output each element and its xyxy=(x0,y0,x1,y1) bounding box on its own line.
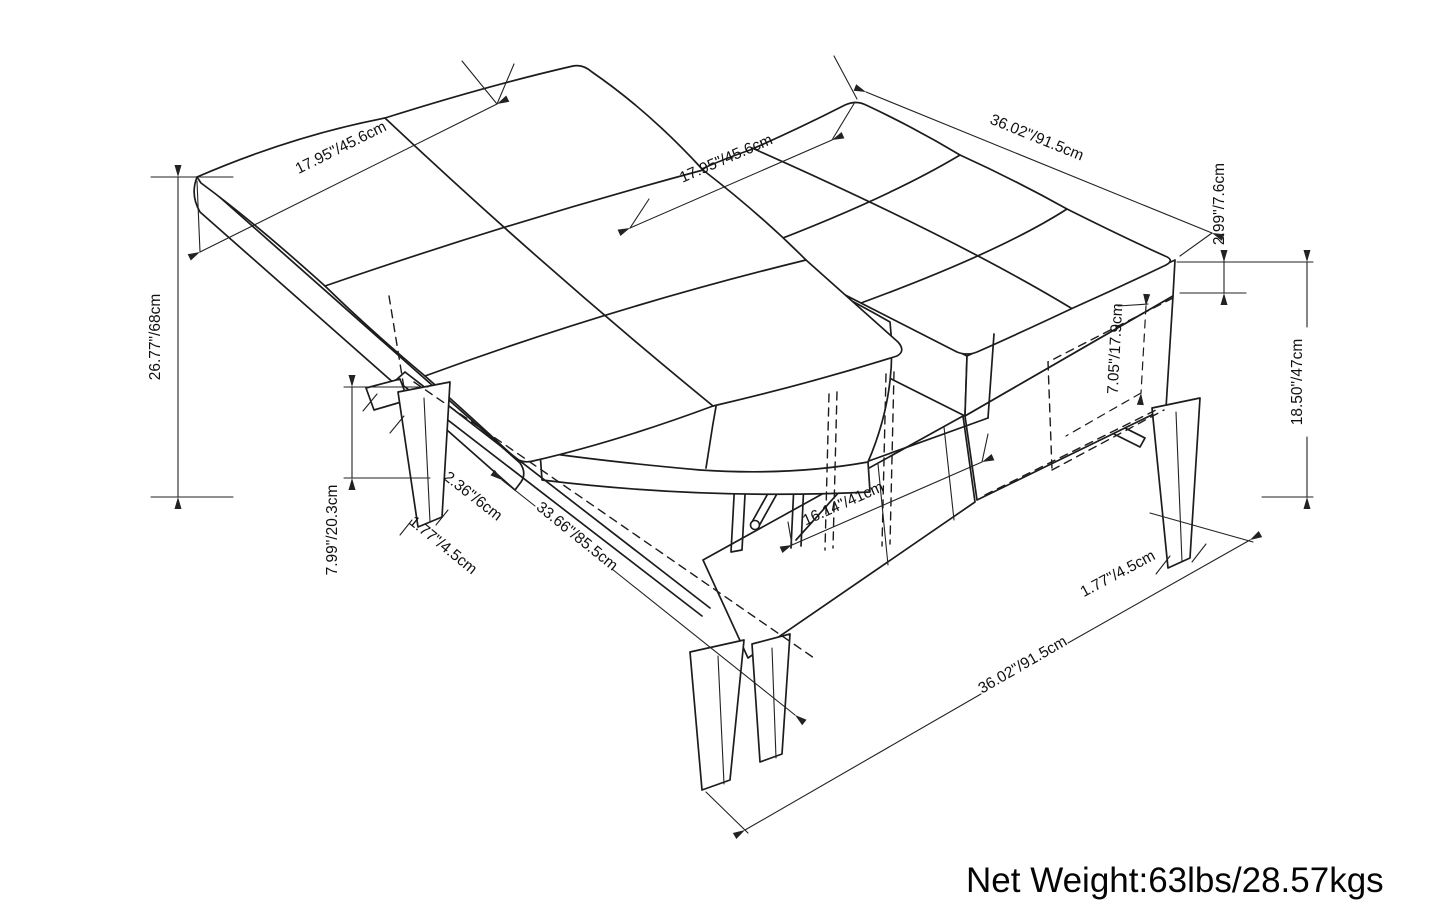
leg-front-left xyxy=(690,640,744,790)
net-weight-text: Net Weight:63lbs/28.57kgs xyxy=(966,861,1384,900)
dim-label-lid-length: 33.66"/85.5cm xyxy=(533,499,621,575)
dim-label-open-height: 26.77"/68cm xyxy=(147,294,164,381)
dim-cushion-thickness: 2.99"/7.6cm xyxy=(1180,163,1246,293)
diagram-page: 17.95"/45.6cm 17.95"/45.6cm 36.02"/91.5c… xyxy=(0,0,1445,905)
dim-label-leg-width-left: 1.77"/4.5cm xyxy=(406,513,481,578)
leg-front-center xyxy=(752,634,790,762)
dim-label-rail-width: 2.36"/6cm xyxy=(440,468,505,524)
dim-label-base-length: 36.02"/91.5cm xyxy=(975,633,1070,697)
ottoman-dimension-diagram: 17.95"/45.6cm 17.95"/45.6cm 36.02"/91.5c… xyxy=(0,0,1445,905)
dim-label-cushion-thickness: 2.99"/7.6cm xyxy=(1211,163,1228,245)
dim-label-top-length: 36.02"/91.5cm xyxy=(987,111,1085,164)
stay-end-cap xyxy=(751,521,760,530)
dim-label-clearance-height: 7.99"/20.3cm xyxy=(324,485,341,576)
dim-table-height: 18.50"/47cm xyxy=(1177,262,1313,497)
dim-label-leg-width-right: 1.77"/4.5cm xyxy=(1078,547,1159,601)
dim-label-table-height: 18.50"/47cm xyxy=(1289,339,1306,426)
dim-leg-width-left: 1.77"/4.5cm xyxy=(400,510,480,578)
